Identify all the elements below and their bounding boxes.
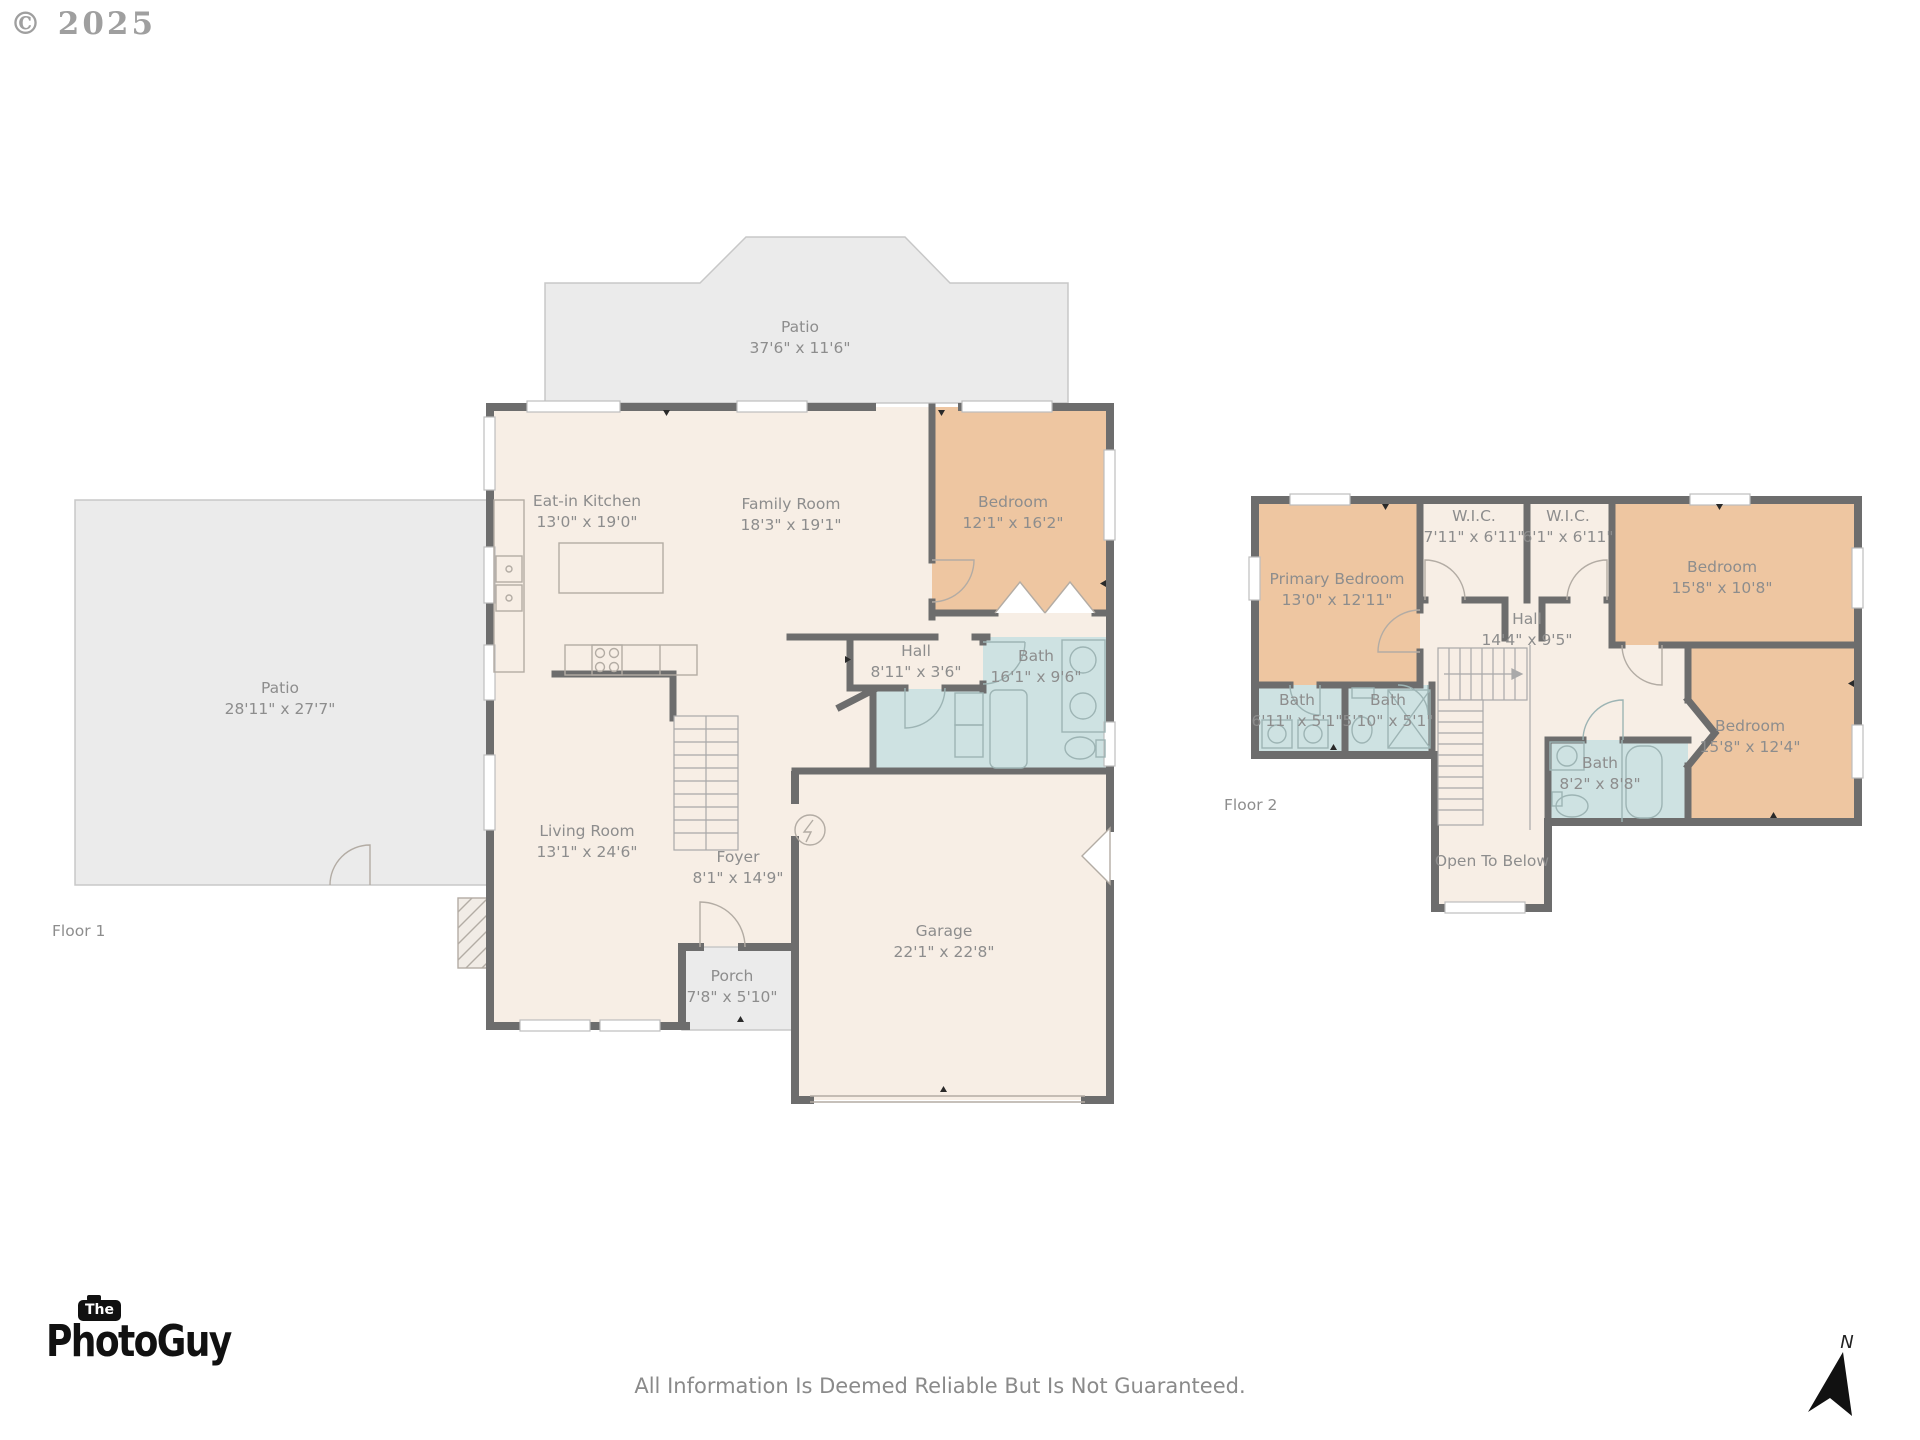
- porch-label: Porch: [711, 967, 754, 985]
- patio-top-label: Patio: [781, 318, 819, 336]
- patio-left-dims: 28'11" x 27'7": [225, 700, 336, 718]
- living-room-label: Living Room: [539, 822, 634, 840]
- family-room-label: Family Room: [742, 495, 841, 513]
- stairs-icon-floor1: [674, 716, 738, 850]
- patio-top-dims: 37'6" x 11'6": [750, 339, 851, 357]
- patio-left-label: Patio: [261, 679, 299, 697]
- kitchen-label: Eat-in Kitchen: [533, 492, 641, 510]
- bath-f1-dims: 16'1" x 9'6": [990, 668, 1081, 686]
- hall-f1-dims: 8'11" x 3'6": [870, 663, 961, 681]
- bedroom-tr-dims: 15'8" x 10'8": [1672, 579, 1773, 597]
- bedroom-tr-label: Bedroom: [1687, 558, 1757, 576]
- family-room-dims: 18'3" x 19'1": [741, 516, 842, 534]
- fireplace-icon: [458, 898, 490, 968]
- north-label: N: [1840, 1332, 1853, 1353]
- disclaimer-text: All Information Is Deemed Reliable But I…: [0, 1374, 1880, 1398]
- bath2-dims: 5'10" x 5'1": [1342, 712, 1433, 730]
- bath-f1-label: Bath: [1018, 647, 1054, 665]
- bath1-dims: 6'11" x 5'1": [1251, 712, 1342, 730]
- floor2-plan: Primary Bedroom 13'0" x 12'11" W.I.C. 7'…: [1224, 494, 1863, 913]
- primary-bedroom-dims: 13'0" x 12'11": [1282, 591, 1393, 609]
- kitchen-dims: 13'0" x 19'0": [537, 513, 638, 531]
- garage-dims: 22'1" x 22'8": [894, 943, 995, 961]
- floor1-label: Floor 1: [52, 922, 105, 940]
- primary-bedroom-label: Primary Bedroom: [1270, 570, 1405, 588]
- hall-f2-dims: 14'4" x 9'5": [1481, 631, 1572, 649]
- bedroom-br-dims: 15'8" x 12'4": [1700, 738, 1801, 756]
- living-room-dims: 13'1" x 24'6": [537, 843, 638, 861]
- logo-brand-text: PhotoGuy: [46, 1316, 231, 1367]
- open-to-below-label: Open To Below: [1435, 852, 1550, 870]
- hall-f2-label: Hall: [1512, 610, 1542, 628]
- bath1-label: Bath: [1279, 691, 1315, 709]
- floor-plan-page: { "watermark": "© 2025", "floor1": { "la…: [0, 0, 1920, 1440]
- floor1-plan: Patio 37'6" x 11'6" Patio 28'11" x 27'7"…: [52, 237, 1115, 1102]
- hall-f1-label: Hall: [901, 642, 931, 660]
- bath2-label: Bath: [1370, 691, 1406, 709]
- bath3-label: Bath: [1582, 754, 1618, 772]
- porch-dims: 7'8" x 5'10": [686, 988, 777, 1006]
- garage-label: Garage: [916, 922, 973, 940]
- wic2-label: W.I.C.: [1546, 507, 1590, 525]
- bath3-dims: 8'2" x 8'8": [1559, 775, 1640, 793]
- wic1-label: W.I.C.: [1452, 507, 1496, 525]
- bedroom-f1-dims: 12'1" x 16'2": [963, 514, 1064, 532]
- wic2-dims: 6'1" x 6'11": [1522, 528, 1613, 546]
- bedroom-br-label: Bedroom: [1715, 717, 1785, 735]
- foyer-label: Foyer: [717, 848, 761, 866]
- floor2-label: Floor 2: [1224, 796, 1277, 814]
- floor-plan-canvas: Patio 37'6" x 11'6" Patio 28'11" x 27'7"…: [0, 0, 1920, 1440]
- bedroom-f1-label: Bedroom: [978, 493, 1048, 511]
- foyer-dims: 8'1" x 14'9": [692, 869, 783, 887]
- wic1-dims: 7'11" x 6'11": [1424, 528, 1525, 546]
